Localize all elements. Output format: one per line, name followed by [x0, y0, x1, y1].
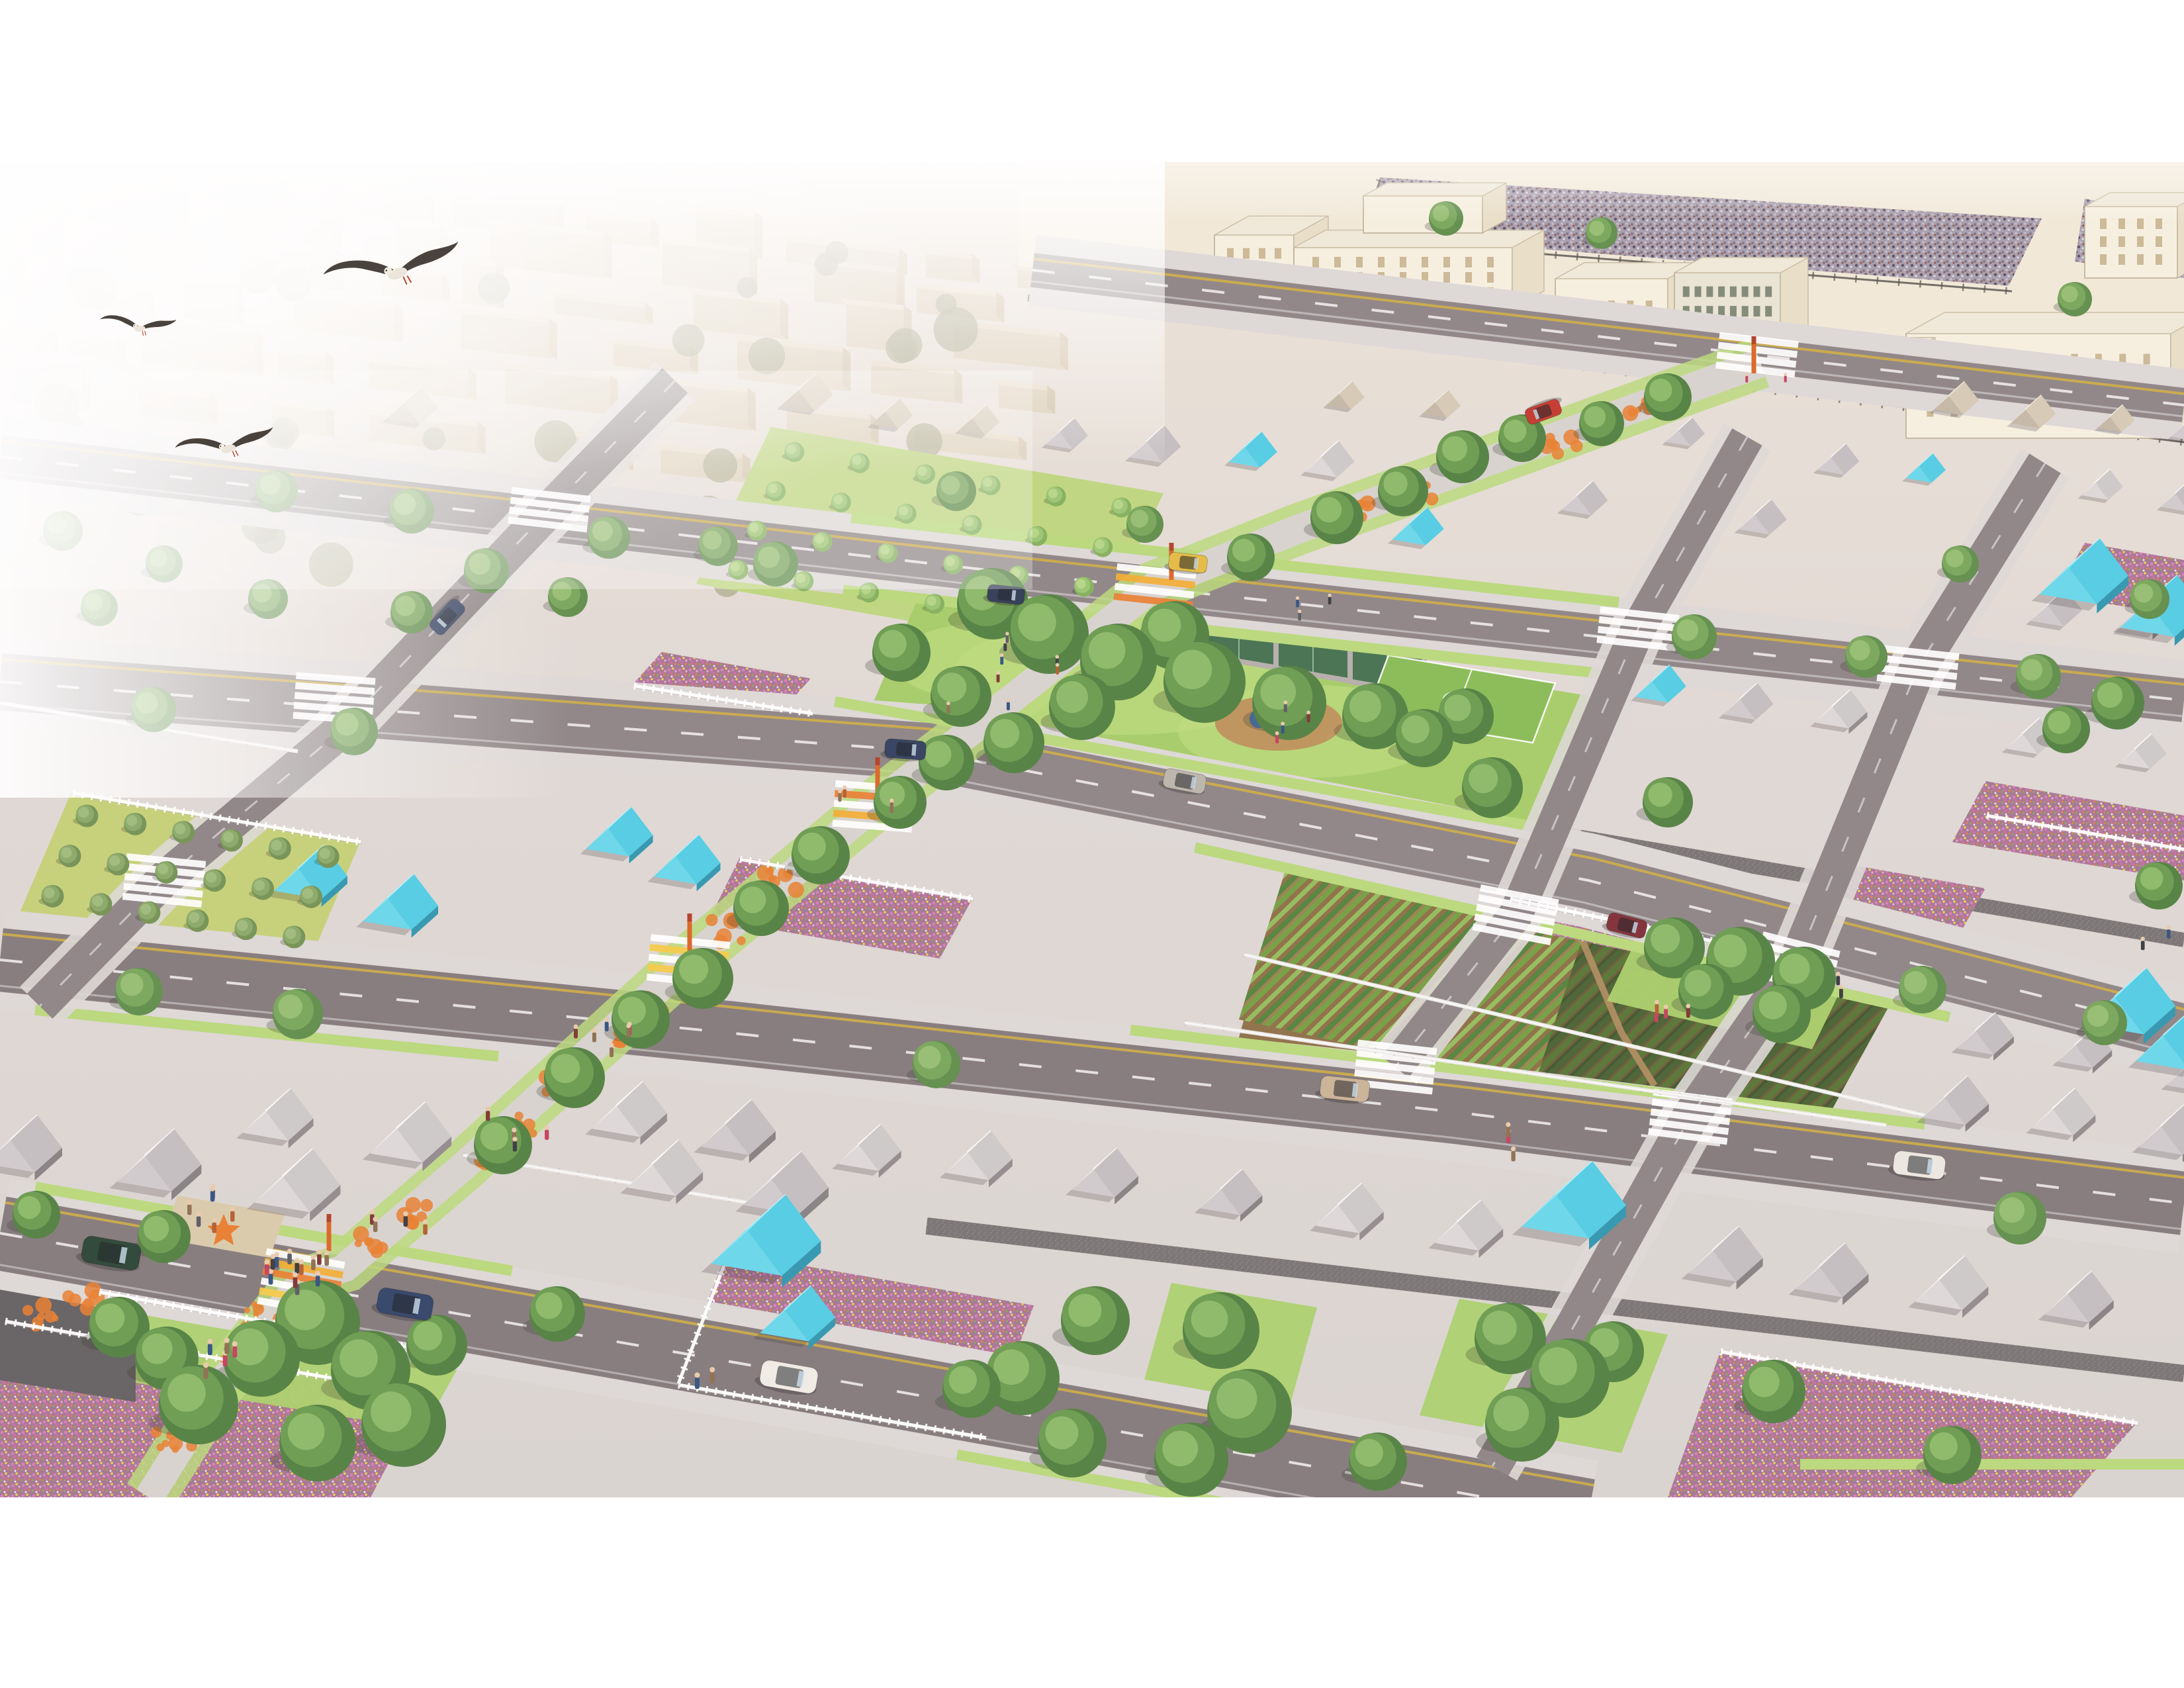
rendering-content — [0, 148, 2184, 1571]
atmosphere — [0, 162, 2184, 1497]
urban-aerial-rendering — [0, 0, 2184, 1688]
rendering-figure — [0, 0, 2184, 1688]
